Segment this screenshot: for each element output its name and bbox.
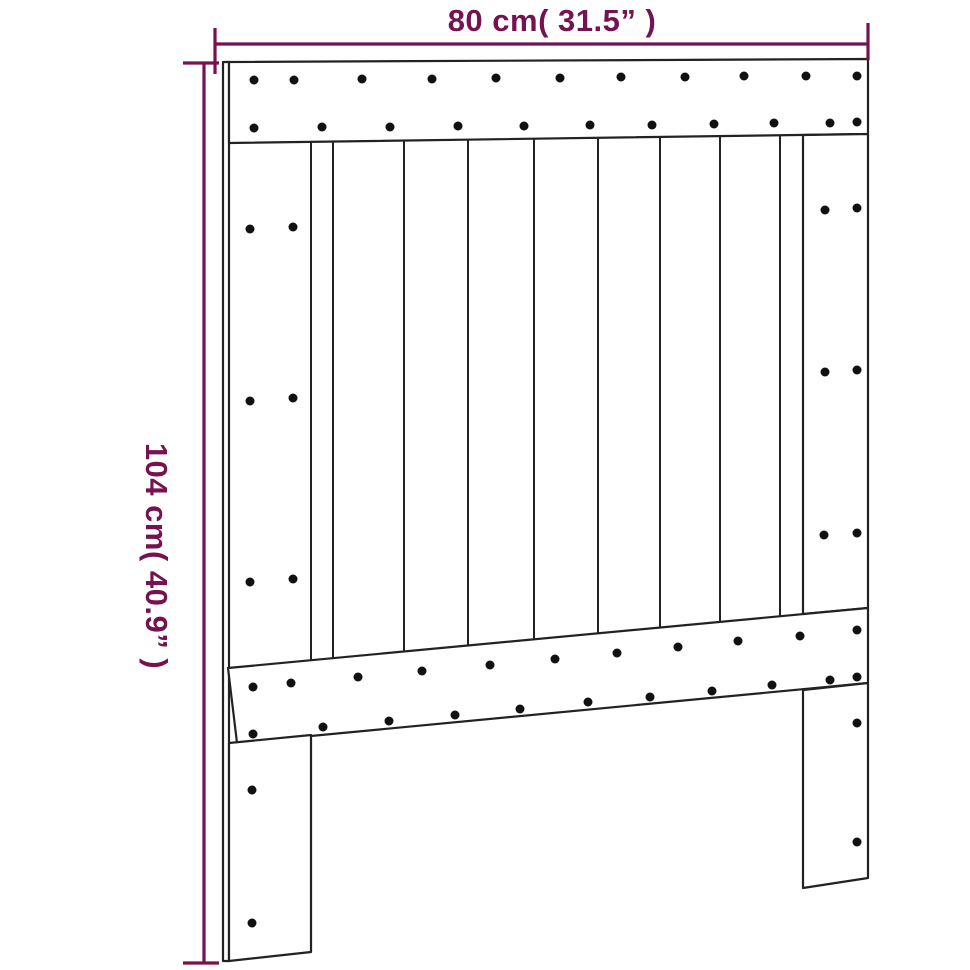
left-stile-screws-dot <box>246 225 255 234</box>
bottom-rail-upper-row-dot <box>249 683 258 692</box>
bottom-rail-upper-row-dot <box>796 632 805 641</box>
right-stile-screws-dot <box>820 531 829 540</box>
top-rail-lower-row-dot <box>586 121 595 130</box>
bottom-rail-lower-row-dot <box>708 687 717 696</box>
bottom-rail-upper-row-dot <box>486 661 495 670</box>
bottom-rail-lower-row-dot <box>516 705 525 714</box>
width-dimension-label: 80 cm( 31.5” ) <box>352 0 752 42</box>
top-rail-upper-row-dot <box>250 76 259 85</box>
left-stile-screws-dot <box>289 394 298 403</box>
bottom-rail-lower-row-dot <box>249 730 258 739</box>
top-rail-upper-row-dot <box>428 75 437 84</box>
right-leg-screws-dot <box>853 719 862 728</box>
top-rail-upper-row-dot <box>492 74 501 83</box>
left-leg-screws-dot <box>248 919 257 928</box>
bottom-rail-upper-row-dot <box>418 667 427 676</box>
top-rail-upper-row-dot <box>853 72 862 81</box>
bottom-rail-upper-row-dot <box>734 637 743 646</box>
top-rail-upper-row-dot <box>290 76 299 85</box>
top-rail-lower-row-dot <box>648 121 657 130</box>
top-rail-lower-row-dot <box>826 119 835 128</box>
bottom-rail-lower-row-dot <box>451 711 460 720</box>
top-rail-upper-row-dot <box>358 75 367 84</box>
top-rail-upper-row-dot <box>681 73 690 82</box>
bottom-rail-lower-row-dot <box>646 693 655 702</box>
right-stile-screws-dot <box>853 204 862 213</box>
bottom-rail-upper-row-dot <box>287 679 296 688</box>
left-stile-screws-dot <box>246 578 255 587</box>
left-stile-screws-dot <box>289 223 298 232</box>
left-stile-screws-dot <box>246 397 255 406</box>
top-rail-lower-row-dot <box>318 123 327 132</box>
bottom-rail-lower-row-dot <box>584 698 593 707</box>
right-stile-screws-dot <box>821 206 830 215</box>
top-rail-lower-row-dot <box>770 119 779 128</box>
bottom-rail-upper-row-dot <box>613 649 622 658</box>
left-leg <box>229 735 311 961</box>
bottom-rail-upper-row-dot <box>551 655 560 664</box>
right-stile-screws-dot <box>821 368 830 377</box>
left-stile-screws-dot <box>289 575 298 584</box>
top-rail-upper-row-dot <box>740 72 749 81</box>
right-leg-screws-dot <box>853 838 862 847</box>
right-leg <box>803 683 868 888</box>
top-rail-lower-row-dot <box>454 122 463 131</box>
top-rail-upper-row-dot <box>617 73 626 82</box>
bottom-rail-upper-row-dot <box>853 626 862 635</box>
bottom-rail-lower-row-dot <box>826 676 835 685</box>
left-leg-screws-dot <box>248 786 257 795</box>
top-rail-upper-row-dot <box>802 72 811 81</box>
top-rail-lower-row-dot <box>250 124 259 133</box>
headboard-dimension-diagram: 80 cm( 31.5” ) 104 cm( 40.9” ) <box>0 0 970 970</box>
bottom-rail-lower-row-dot <box>319 723 328 732</box>
top-rail-lower-row-dot <box>853 118 862 127</box>
bottom-rail-lower-row-dot <box>385 717 394 726</box>
right-stile-screws-dot <box>853 529 862 538</box>
right-stile-screws-dot <box>853 366 862 375</box>
bottom-rail-upper-row-dot <box>354 673 363 682</box>
top-rail-lower-row-dot <box>386 123 395 132</box>
bottom-rail-lower-row-dot <box>853 673 862 682</box>
height-dimension-label: 104 cm( 40.9” ) <box>135 356 177 756</box>
top-rail-lower-row-dot <box>520 122 529 131</box>
bottom-rail-lower-row-dot <box>768 681 777 690</box>
bottom-rail-upper-row-dot <box>674 643 683 652</box>
top-rail-lower-row-dot <box>710 120 719 129</box>
top-rail-upper-row-dot <box>556 74 565 83</box>
